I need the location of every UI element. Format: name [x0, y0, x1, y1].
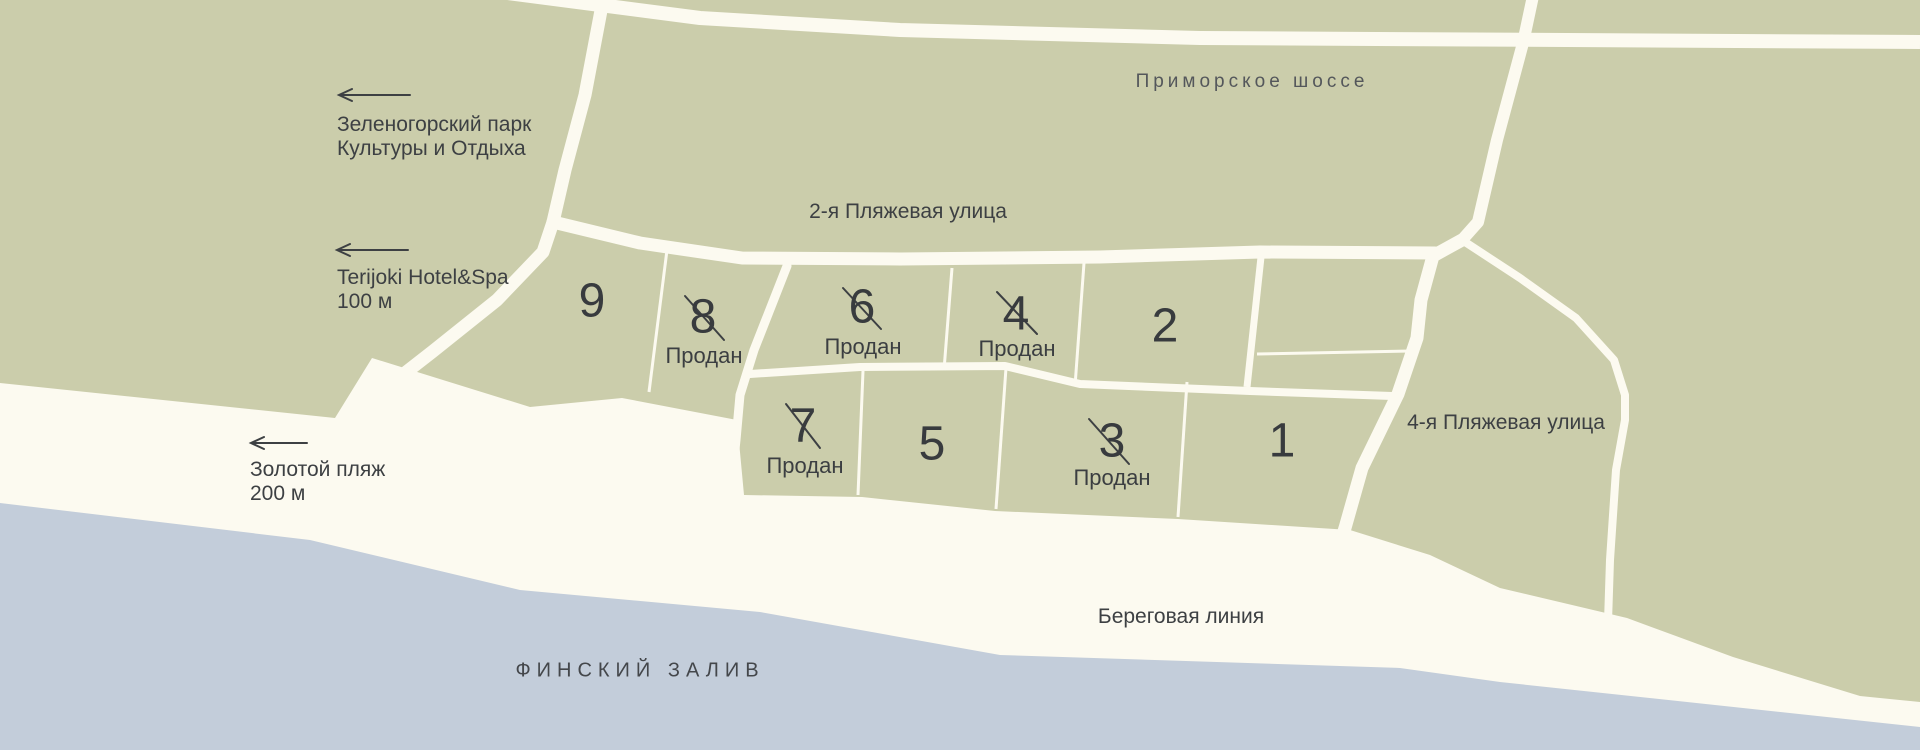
- poi-golden-beach-line1: Золотой пляж: [250, 458, 385, 482]
- site-plan-map: Приморское шоссе 2-я Пляжевая улица 4-я …: [0, 0, 1920, 750]
- plot-number-6: 6: [849, 280, 876, 335]
- shoreline-label: Береговая линия: [1098, 605, 1264, 629]
- plot-area-3: [998, 370, 1184, 517]
- road-label-primorskoye: Приморское шоссе: [1136, 71, 1369, 93]
- plot-number-3: 3: [1099, 414, 1126, 469]
- status-badge-sold-3: Продан: [1073, 465, 1150, 491]
- plot-number-8: 8: [690, 290, 717, 345]
- plot-number-9[interactable]: 9: [579, 274, 606, 329]
- plot-number-1[interactable]: 1: [1269, 414, 1296, 469]
- gulf-label: ФИНСКИЙ ЗАЛИВ: [515, 660, 764, 683]
- plot-number-4: 4: [1003, 287, 1030, 342]
- status-badge-sold-7: Продан: [766, 453, 843, 479]
- road-label-beach-street-4: 4-я Пляжевая улица: [1407, 411, 1605, 435]
- poi-park-line2: Культуры и Отдыха: [337, 137, 531, 161]
- poi-golden-beach-line2: 200 м: [250, 482, 385, 506]
- poi-park-line1: Зеленогорский парк: [337, 113, 531, 137]
- poi-label-golden-beach: Золотой пляж 200 м: [250, 458, 385, 506]
- poi-label-hotel: Terijoki Hotel&Spa 100 м: [337, 266, 509, 314]
- plot-number-7: 7: [790, 399, 817, 454]
- status-badge-sold-4: Продан: [978, 336, 1055, 362]
- plot-area-unlabeled-lower: [1252, 355, 1408, 393]
- road-label-beach-street-2: 2-я Пляжевая улица: [809, 200, 1007, 224]
- map-canvas: [0, 0, 1920, 750]
- plot-area-unlabeled-upper: [1259, 253, 1428, 353]
- poi-hotel-line1: Terijoki Hotel&Spa: [337, 266, 509, 290]
- status-badge-sold-8: Продан: [665, 343, 742, 369]
- plot-number-2[interactable]: 2: [1152, 299, 1179, 354]
- plot-number-5[interactable]: 5: [919, 417, 946, 472]
- poi-label-park: Зеленогорский парк Культуры и Отдыха: [337, 113, 531, 161]
- status-badge-sold-6: Продан: [824, 334, 901, 360]
- poi-hotel-line2: 100 м: [337, 290, 509, 314]
